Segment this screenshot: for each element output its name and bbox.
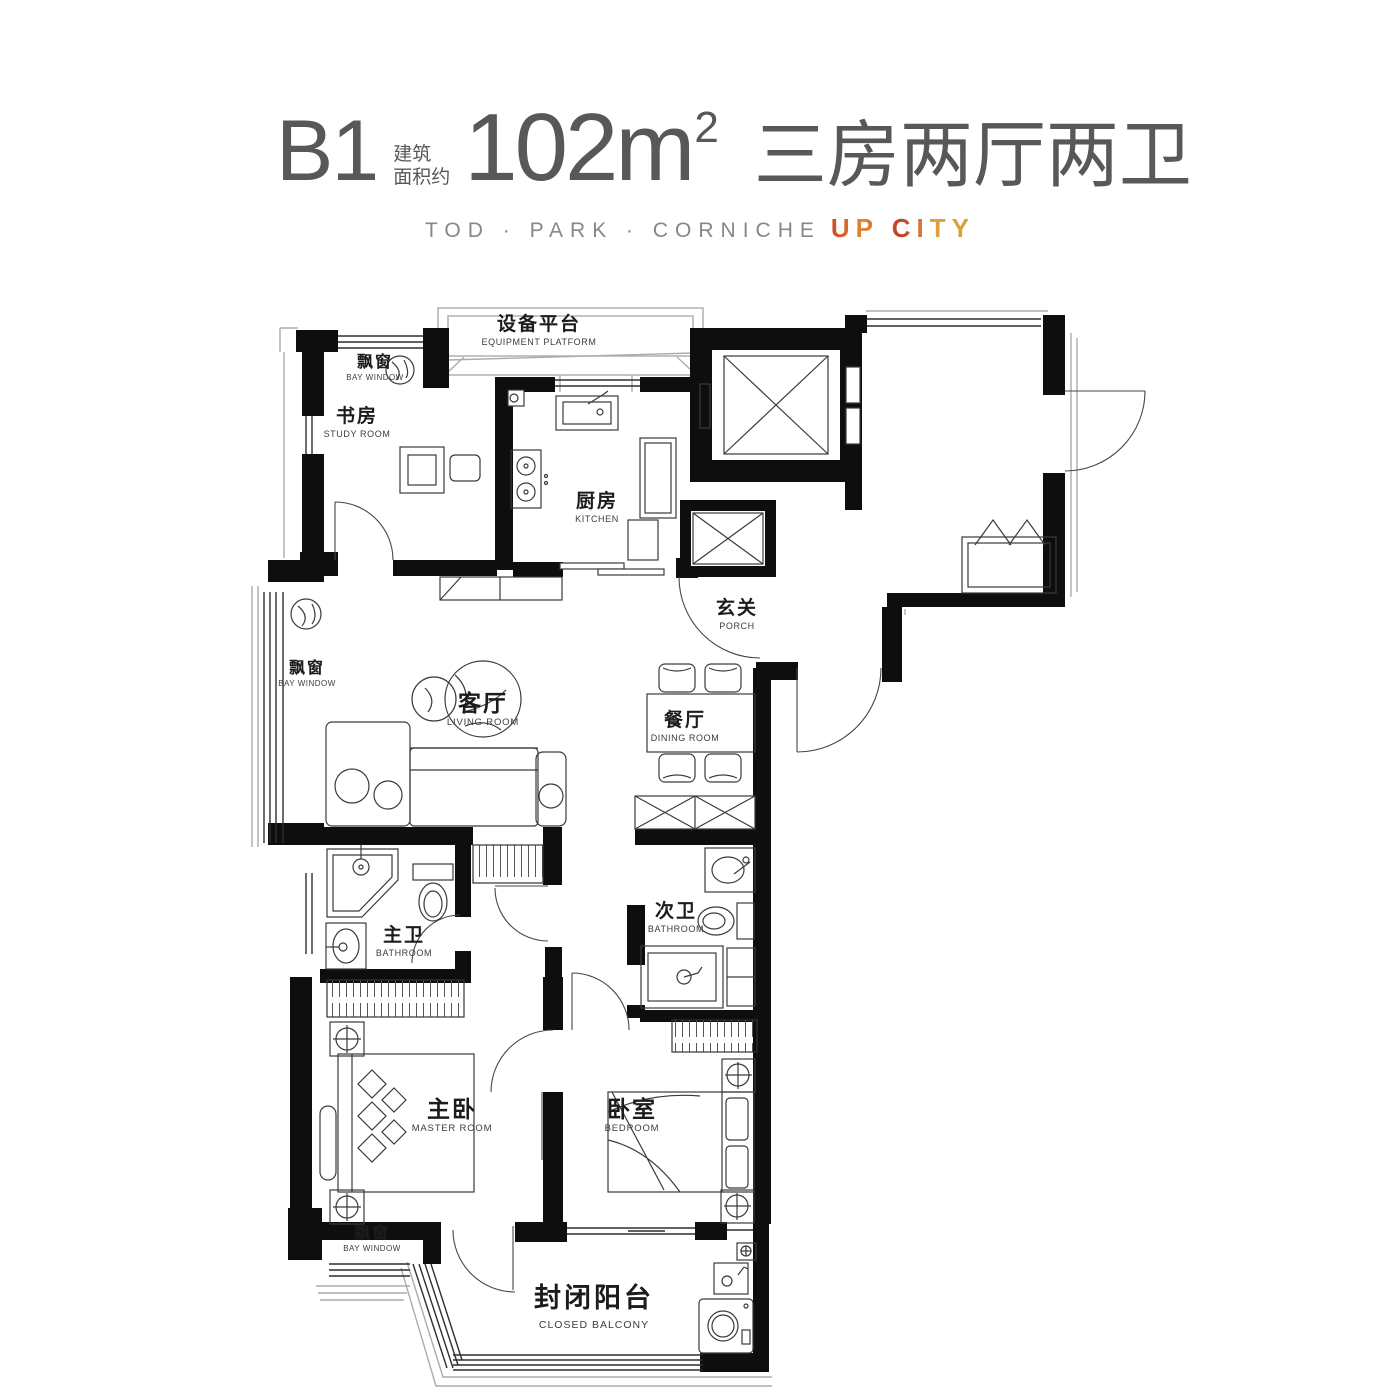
bath-sink-icon (705, 848, 755, 892)
cushion-icon (335, 769, 369, 803)
washing-machine-icon (699, 1299, 753, 1353)
room-label-kitchen: 厨房 KITCHEN (575, 492, 619, 525)
bedside-bench (320, 1106, 336, 1180)
porch-inner-door (797, 668, 881, 752)
room-label-equipment-platform: 设备平台 EQUIPMENT PLATFORM (482, 315, 597, 348)
shower-icon (641, 946, 723, 1008)
kitchen-sink-icon (556, 391, 618, 430)
walls (268, 315, 1065, 1372)
hall-door (495, 886, 548, 941)
hanger-icon (975, 520, 1045, 545)
bath-sink-icon (326, 923, 366, 969)
dining-duct-icon (635, 796, 755, 829)
shoe-cabinet (962, 537, 1056, 593)
cushion-icon (374, 781, 402, 809)
stove-icon (511, 450, 548, 508)
room-label-study: 书房 STUDY ROOM (324, 407, 391, 440)
kitchen-cabinet (628, 520, 658, 560)
shower-icon (327, 845, 398, 917)
balcony-door (453, 1226, 515, 1292)
floor-plan-drawing (0, 0, 1400, 1400)
room-label-dining: 餐厅 DINING ROOM (651, 711, 720, 744)
room-label-second-bath: 次卫 BATHROOM (648, 902, 704, 935)
room-label-bay-window-top: 飘窗 BAY WINDOW (346, 354, 404, 382)
ac-icon (722, 1059, 755, 1092)
sofa (326, 722, 566, 826)
room-label-porch: 玄关 PORCH (716, 599, 758, 632)
plant-icon (291, 599, 321, 629)
porch-furniture (962, 520, 1056, 593)
room-label-living: 客厅 LIVING ROOM (447, 691, 519, 729)
side-table-icon (539, 784, 563, 808)
room-label-master-bath: 主卫 BATHROOM (376, 926, 432, 959)
room-label-master-bedroom: 主卧 MASTER ROOM (412, 1097, 493, 1135)
ac-icon (721, 1190, 754, 1223)
kitchen-fixtures (511, 391, 676, 560)
living-furniture (291, 577, 566, 826)
balcony-sink-icon (714, 1263, 748, 1294)
room-label-bay-window-bottom: 飘窗 BAY WINDOW (343, 1225, 401, 1253)
pillow-icon (358, 1070, 386, 1162)
pillow-icon (726, 1146, 748, 1188)
room-label-closed-balcony: 封闭阳台 CLOSED BALCONY (534, 1284, 654, 1331)
bedroom-wardrobe (672, 1020, 757, 1052)
fridge-icon (640, 438, 676, 518)
toilet-icon (698, 903, 754, 939)
ac-icon (330, 1022, 364, 1056)
master-wardrobe (327, 980, 464, 1017)
toilet-icon (413, 864, 453, 921)
room-label-bay-window-left: 飘窗 BAY WINDOW (278, 660, 336, 688)
room-label-bedroom: 卧室 BEDROOM (605, 1097, 660, 1135)
kitchen-sliding-door (560, 563, 624, 569)
floor-plan: 设备平台 EQUIPMENT PLATFORM 飘窗 BAY WINDOW 书房… (0, 0, 1400, 1400)
tv-cabinet (440, 577, 562, 600)
study-door (335, 502, 393, 560)
balcony-fixtures (699, 1243, 756, 1353)
bedroom-door (572, 973, 629, 1030)
hall-closet (473, 845, 543, 883)
ac-icon (330, 1190, 364, 1224)
pillow-icon (726, 1098, 748, 1140)
